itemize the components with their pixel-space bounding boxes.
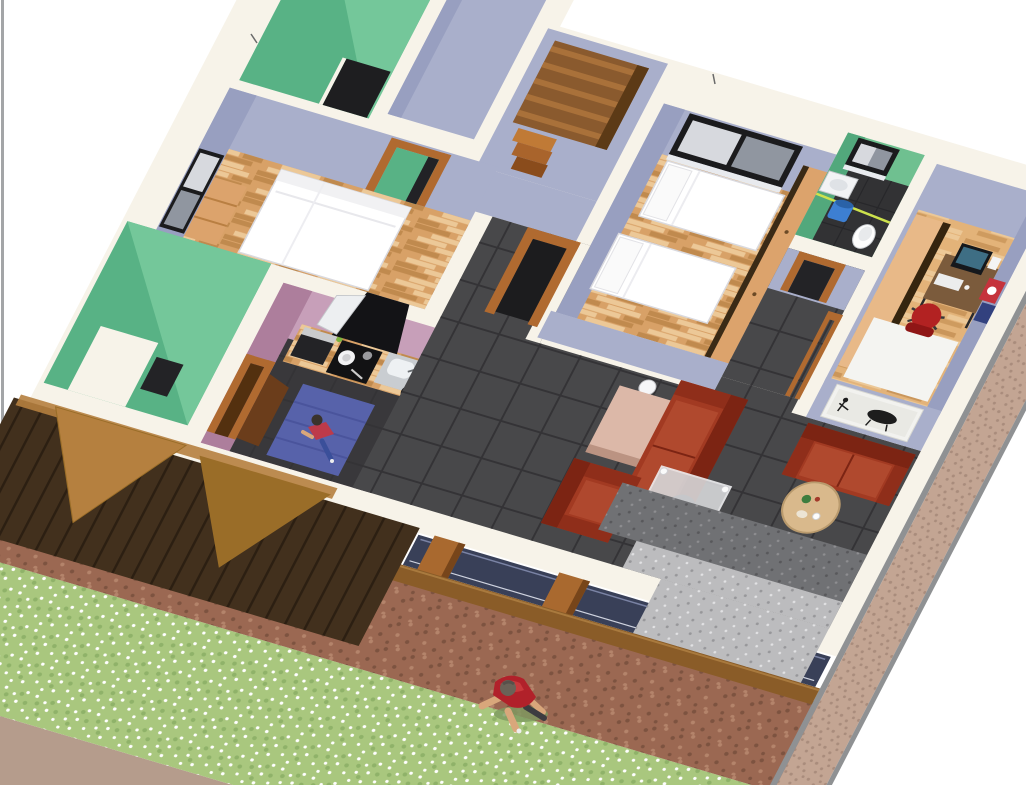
head bbox=[312, 415, 323, 426]
shoe bbox=[330, 459, 334, 463]
floorplan-render bbox=[0, 0, 1026, 785]
floorplan-render-stage bbox=[0, 0, 1026, 785]
shoe bbox=[517, 729, 522, 734]
